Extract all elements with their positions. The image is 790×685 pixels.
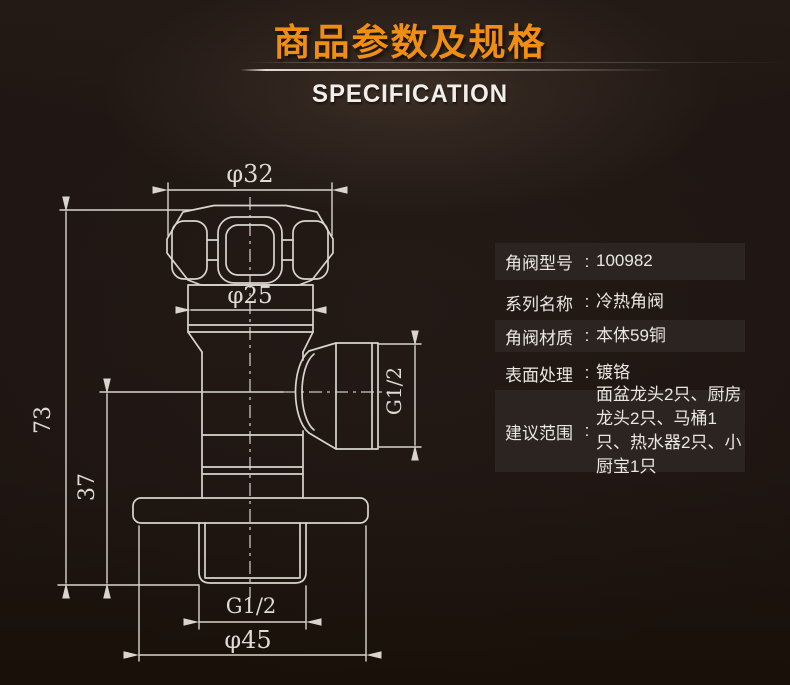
spec-label: 角阀型号 <box>505 249 578 274</box>
spec-label: 表面处理 <box>505 361 578 386</box>
dim-label-collar-width: φ25 <box>227 283 272 309</box>
spec-row-usage: 建议范围 : 面盆龙头2只、厨房龙头2只、马桶1只、热水器2只、小厨宝1只 <box>495 390 745 472</box>
valve-stem-outline <box>199 523 306 583</box>
valve-handle-outline <box>167 206 333 286</box>
valve-body-outline <box>202 352 303 498</box>
dim-label-flange-width: φ45 <box>224 626 271 654</box>
product-spec-page: 商品参数及规格 SPECIFICATION <box>0 0 790 685</box>
spec-value: 本体59铜 <box>596 324 745 348</box>
spec-colon: : <box>578 292 596 312</box>
spec-row-series: 系列名称 : 冷热角阀 <box>495 287 745 317</box>
dim-label-bottom-thread: G1/2 <box>226 594 277 618</box>
spec-value: 镀铬 <box>596 361 745 385</box>
spec-row-material: 角阀材质 : 本体59铜 <box>495 320 745 352</box>
spec-label: 建议范围 <box>505 419 578 444</box>
dim-label-side-thread: G1/2 <box>382 367 406 415</box>
dim-label-total-height: 73 <box>31 406 56 434</box>
spec-label: 系列名称 <box>505 290 578 315</box>
valve-side-outlet-outline <box>296 343 379 449</box>
dimension-extension-lines <box>58 183 421 661</box>
spec-colon: : <box>578 326 596 346</box>
spec-colon: : <box>578 421 596 441</box>
spec-value: 100982 <box>596 249 745 273</box>
spec-colon: : <box>578 363 596 383</box>
spec-label: 角阀材质 <box>505 324 578 349</box>
spec-row-model: 角阀型号 : 100982 <box>495 243 745 280</box>
dim-label-lower-height: 37 <box>75 473 100 501</box>
spec-colon: : <box>578 252 596 272</box>
spec-value: 冷热角阀 <box>596 290 745 314</box>
spec-value: 面盆龙头2只、厨房龙头2只、马桶1只、热水器2只、小厨宝1只 <box>596 383 745 480</box>
dim-label-top-width: φ32 <box>226 160 273 188</box>
